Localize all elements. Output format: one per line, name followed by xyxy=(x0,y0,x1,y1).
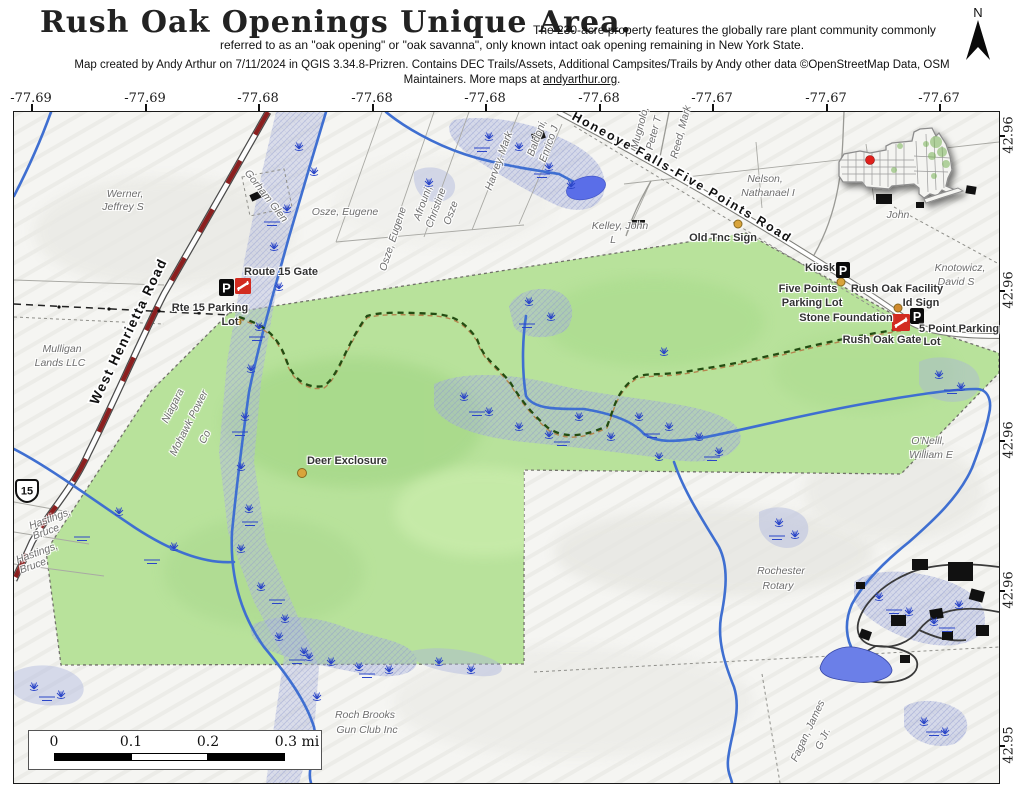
north-arrow: N xyxy=(957,4,997,64)
axis-tick xyxy=(939,104,941,111)
route-shield-number: 15 xyxy=(21,486,33,498)
axis-tick xyxy=(712,104,714,111)
credit-line-2-post: . xyxy=(617,74,620,86)
subtitle-line-1: The 230-acre property features the globa… xyxy=(533,23,936,37)
kiosk-parking-icon: P xyxy=(836,262,850,278)
map-art: P P P 15 West Henriet xyxy=(14,112,999,783)
map-document-page: Rush Oak Openings Unique Area. The 230-a… xyxy=(0,0,1024,791)
axis-tick xyxy=(826,104,828,111)
inset-location-marker xyxy=(866,156,875,165)
subtitle-line-2: referred to as an "oak opening" or "oak … xyxy=(0,38,1024,52)
andyarthur-link[interactable]: andyarthur.org xyxy=(543,74,617,86)
gate-icon xyxy=(892,314,910,331)
credit-line-2: Maintainers. More maps at andyarthur.org… xyxy=(0,74,1024,86)
axis-tick xyxy=(31,104,33,111)
parking-letter: P xyxy=(222,281,231,296)
axis-tick xyxy=(485,104,487,111)
parking-letter: P xyxy=(839,264,847,278)
axis-tick xyxy=(145,104,147,111)
north-label: N xyxy=(973,5,982,20)
route-15-shield: 15 xyxy=(16,480,38,502)
axis-tick xyxy=(599,104,601,111)
axis-tick xyxy=(372,104,374,111)
credit-line-2-pre: Maintainers. More maps at xyxy=(404,74,543,86)
parking-letter: P xyxy=(913,310,921,324)
credit-line-1: Map created by Andy Arthur on 7/11/2024 … xyxy=(0,59,1024,71)
north-arrow-glyph xyxy=(966,20,990,60)
gate-icon xyxy=(235,278,251,294)
axis-tick xyxy=(258,104,260,111)
map-canvas: P P P 15 West Henriet xyxy=(13,111,1000,784)
